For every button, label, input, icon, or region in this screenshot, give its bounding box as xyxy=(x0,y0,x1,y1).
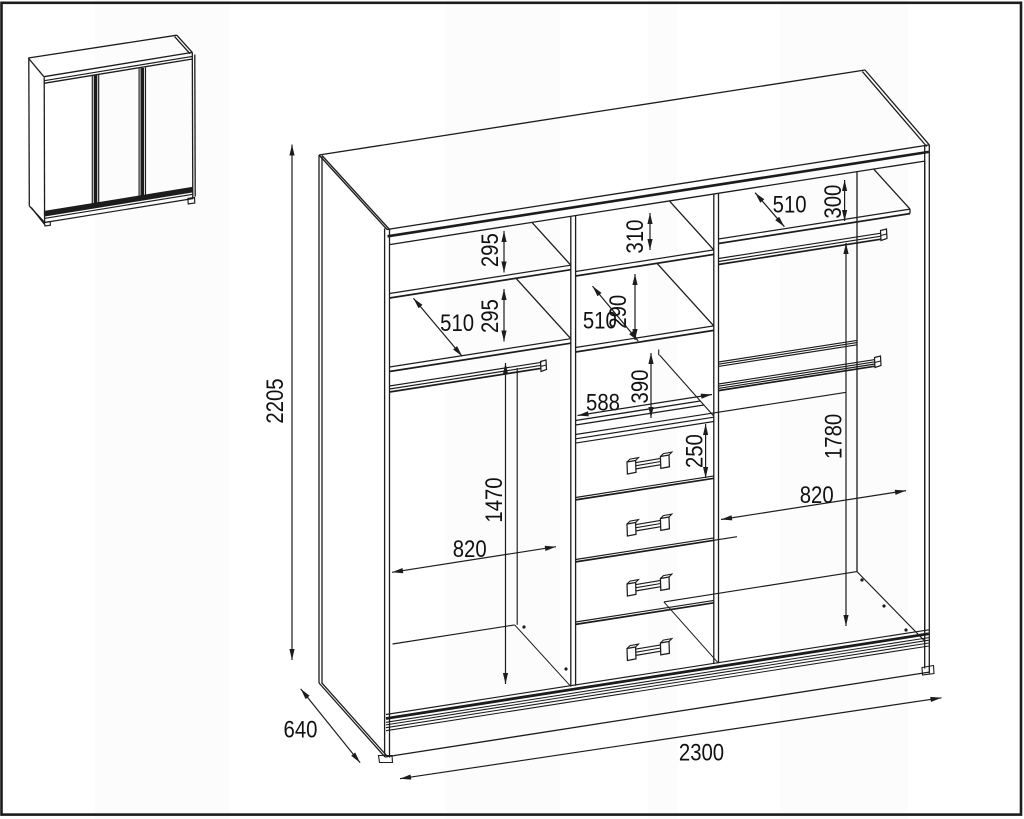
svg-text:310: 310 xyxy=(622,220,649,254)
svg-text:820: 820 xyxy=(800,482,834,509)
svg-text:820: 820 xyxy=(453,536,487,563)
svg-text:2300: 2300 xyxy=(679,740,724,767)
svg-text:300: 300 xyxy=(820,185,847,219)
svg-text:295: 295 xyxy=(477,233,504,267)
svg-text:588: 588 xyxy=(586,390,620,417)
svg-text:250: 250 xyxy=(682,434,709,468)
svg-text:510: 510 xyxy=(440,310,474,337)
svg-text:510: 510 xyxy=(773,192,807,219)
svg-text:1470: 1470 xyxy=(481,477,508,522)
svg-text:390: 390 xyxy=(627,370,654,404)
svg-text:510: 510 xyxy=(583,308,617,335)
svg-text:2205: 2205 xyxy=(262,378,289,423)
svg-text:640: 640 xyxy=(284,716,318,743)
svg-text:1780: 1780 xyxy=(820,414,847,459)
svg-text:295: 295 xyxy=(477,299,504,333)
